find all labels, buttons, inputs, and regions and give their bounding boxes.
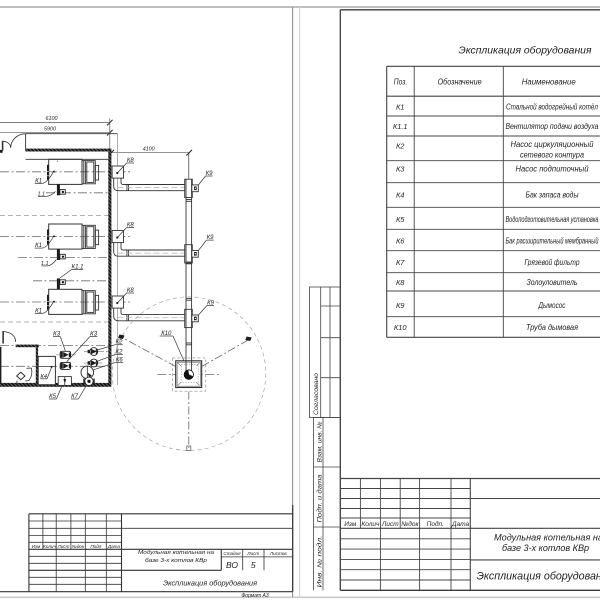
svg-text:Бак расширительный мембранный: Бак расширительный мембранный [506, 236, 599, 245]
svg-text:Изм: Изм [32, 544, 41, 549]
svg-text:Насос циркуляционный: Насос циркуляционный [511, 140, 595, 149]
svg-text:5: 5 [251, 560, 256, 570]
svg-text:Экспликация оборудования: Экспликация оборудования [459, 45, 592, 57]
svg-text:Бак запаса воды: Бак запаса воды [526, 191, 579, 200]
svg-text:Изм: Изм [344, 521, 357, 528]
svg-text:Подп: Подп [90, 544, 101, 549]
svg-text:Колич: Колич [361, 521, 380, 528]
svg-text:№док: №док [72, 544, 85, 549]
svg-text:Подп. и дата: Подп. и дата [318, 474, 324, 523]
svg-text:Обозначение: Обозначение [438, 77, 482, 86]
svg-text:Грязевой фильтр: Грязевой фильтр [525, 258, 581, 267]
svg-text:Стальной водогрейный котёл: Стальной водогрейный котёл [506, 102, 598, 111]
svg-text:ВО: ВО [226, 560, 238, 570]
svg-text:4100: 4100 [143, 146, 156, 152]
svg-text:Взам. инв. №: Взам. инв. № [317, 421, 324, 463]
svg-text:6100: 6100 [46, 116, 59, 122]
svg-text:№док: №док [401, 520, 419, 528]
svg-text:Согласовано: Согласовано [314, 372, 320, 415]
svg-text:+: + [56, 160, 58, 164]
svg-text:К7: К7 [396, 258, 405, 267]
svg-text:К10: К10 [394, 323, 407, 332]
svg-text:5900: 5900 [44, 126, 57, 132]
svg-text:Золоуловитель: Золоуловитель [527, 278, 578, 287]
svg-text:Насос подпиточный: Насос подпиточный [516, 165, 590, 174]
svg-text:сетевого контура: сетевого контура [520, 151, 585, 160]
svg-text:К6: К6 [396, 236, 405, 245]
svg-text:базе 3-х котлов КВр: базе 3-х котлов КВр [502, 543, 589, 553]
svg-text:Водоподготовительная установка: Водоподготовительная установка [506, 215, 599, 224]
svg-text:Дымосос: Дымосос [538, 301, 566, 310]
svg-text:Лист: Лист [381, 521, 399, 528]
svg-text:К1: К1 [396, 102, 404, 111]
svg-text:Листов: Листов [269, 551, 287, 556]
svg-text:Модульная котельная на: Модульная котельная на [494, 533, 600, 543]
svg-text:Поз.: Поз. [394, 77, 408, 86]
svg-text:Формат А3: Формат А3 [241, 593, 269, 599]
svg-text:Модульная котельная на: Модульная котельная на [138, 550, 215, 556]
svg-text:Инв. № подл.: Инв. № подл. [317, 536, 324, 588]
svg-text:Колич: Колич [43, 544, 56, 549]
svg-text:К2: К2 [396, 142, 404, 151]
svg-text:Вентилятор подачи воздуха: Вентилятор подачи воздуха [506, 122, 600, 131]
svg-text:Наименование: Наименование [522, 77, 577, 86]
svg-text:Дата: Дата [451, 521, 470, 528]
svg-text:базе 3-х котлов КВр: базе 3-х котлов КВр [145, 558, 208, 564]
svg-text:К3: К3 [396, 165, 405, 174]
svg-text:Лист: Лист [246, 551, 259, 556]
svg-text:Экспликация оборудования: Экспликация оборудования [163, 578, 257, 587]
svg-text:К8: К8 [396, 278, 405, 287]
svg-text:Подп.: Подп. [427, 520, 444, 528]
svg-text:К5: К5 [396, 215, 405, 224]
svg-text:Экспликация оборудования: Экспликация оборудования [477, 571, 600, 583]
svg-text:К9: К9 [396, 301, 404, 310]
svg-text:К1.1: К1.1 [393, 122, 408, 131]
svg-text:Лист: Лист [57, 544, 70, 549]
svg-text:К4: К4 [396, 191, 404, 200]
svg-text:Стадия: Стадия [223, 551, 241, 556]
svg-text:Труба дымовая: Труба дымовая [526, 323, 579, 332]
svg-text:Дата: Дата [107, 544, 121, 549]
